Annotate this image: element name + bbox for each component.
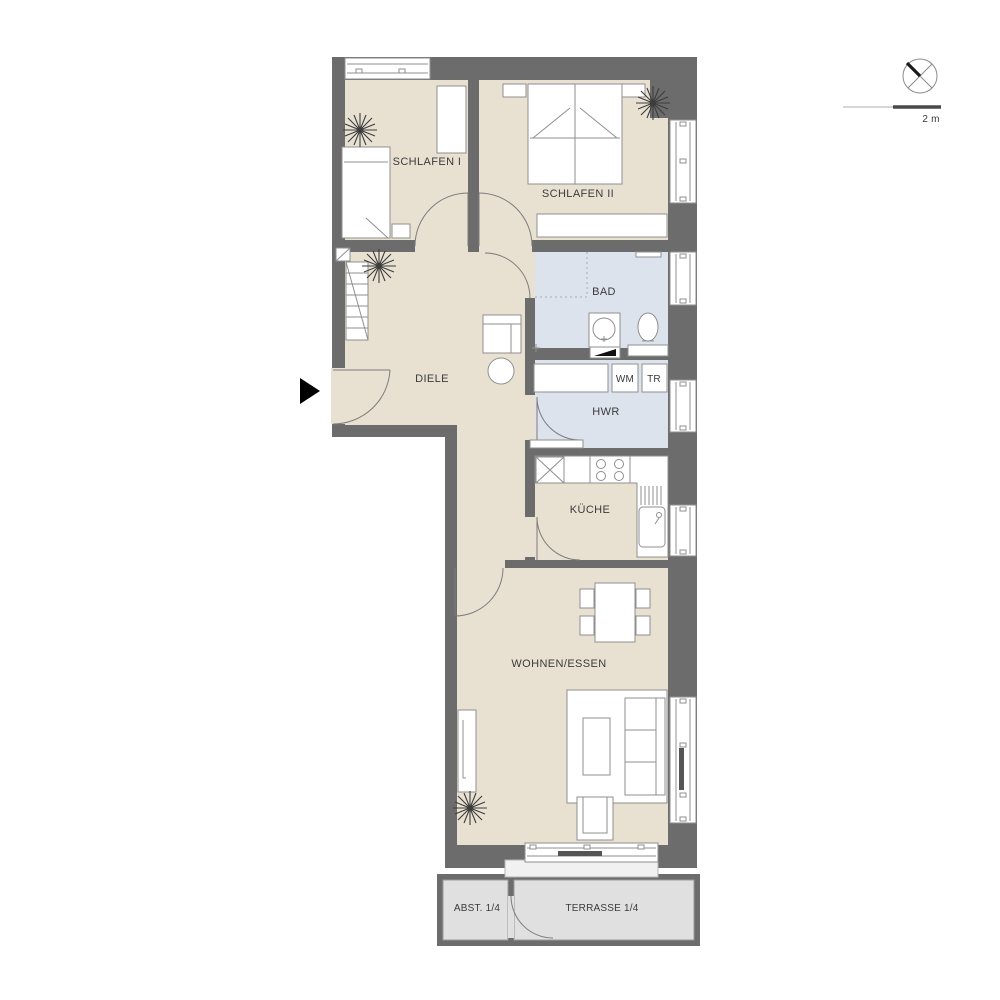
- window-bad: [670, 252, 696, 305]
- window-schlafen-1: [345, 58, 430, 79]
- label-terrasse: TERRASSE 1/4: [566, 903, 639, 914]
- sideboard: [537, 214, 667, 237]
- nightstand-left: [503, 84, 526, 97]
- utility-counter: [534, 364, 608, 392]
- dining-chair: [580, 589, 594, 608]
- nightstand: [392, 224, 410, 238]
- wardrobe: [437, 86, 466, 153]
- plant-icon: [636, 86, 670, 120]
- sliding-door-terrasse: [525, 843, 658, 862]
- entrance-arrow-icon: [300, 378, 320, 404]
- window-schlafen-2: [670, 120, 696, 203]
- label-hwr: HWR: [592, 406, 619, 418]
- plant-icon: [362, 249, 396, 283]
- toilet-base: [628, 345, 668, 356]
- label-tr: TR: [647, 374, 661, 385]
- dining-chair: [636, 616, 650, 635]
- label-bad: BAD: [592, 286, 616, 298]
- stove: [590, 456, 630, 483]
- tv-board: [458, 710, 476, 792]
- label-kueche: KÜCHE: [570, 504, 611, 516]
- terrace-sill: [505, 860, 658, 877]
- desk: [483, 315, 521, 353]
- sofa: [625, 698, 665, 795]
- window-hwr: [670, 380, 696, 432]
- vent-slot: [636, 252, 661, 257]
- window-wohnen: [670, 697, 696, 823]
- threshold: [530, 440, 583, 448]
- plant-icon: [453, 791, 487, 825]
- label-diele: DIELE: [415, 373, 449, 385]
- floor-plan-svg: SCHLAFEN I SCHLAFEN II BAD DIELE HWR KÜC…: [0, 0, 1000, 1000]
- window-kueche: [670, 505, 696, 556]
- coffee-table: [583, 718, 610, 775]
- single-bed: [342, 147, 390, 238]
- label-schlafen-1: SCHLAFEN I: [393, 156, 462, 168]
- plant-icon: [343, 113, 377, 147]
- floor-plan-page: SCHLAFEN I SCHLAFEN II BAD DIELE HWR KÜC…: [0, 0, 1000, 1000]
- north-compass-icon: [903, 59, 937, 93]
- toilet: [638, 313, 658, 341]
- entrance-opening: [331, 368, 345, 424]
- scale-label: 2 m: [922, 114, 939, 125]
- label-schlafen-2: SCHLAFEN II: [542, 188, 614, 200]
- dining-chair: [636, 589, 650, 608]
- scale-bar: 2 m: [843, 107, 941, 125]
- label-wohnen-essen: WOHNEN/ESSEN: [511, 658, 606, 670]
- label-abstellraum: ABST. 1/4: [454, 903, 501, 914]
- stool: [488, 358, 514, 384]
- dining-table: [595, 583, 635, 642]
- label-wm: WM: [616, 374, 634, 385]
- dining-chair: [580, 616, 594, 635]
